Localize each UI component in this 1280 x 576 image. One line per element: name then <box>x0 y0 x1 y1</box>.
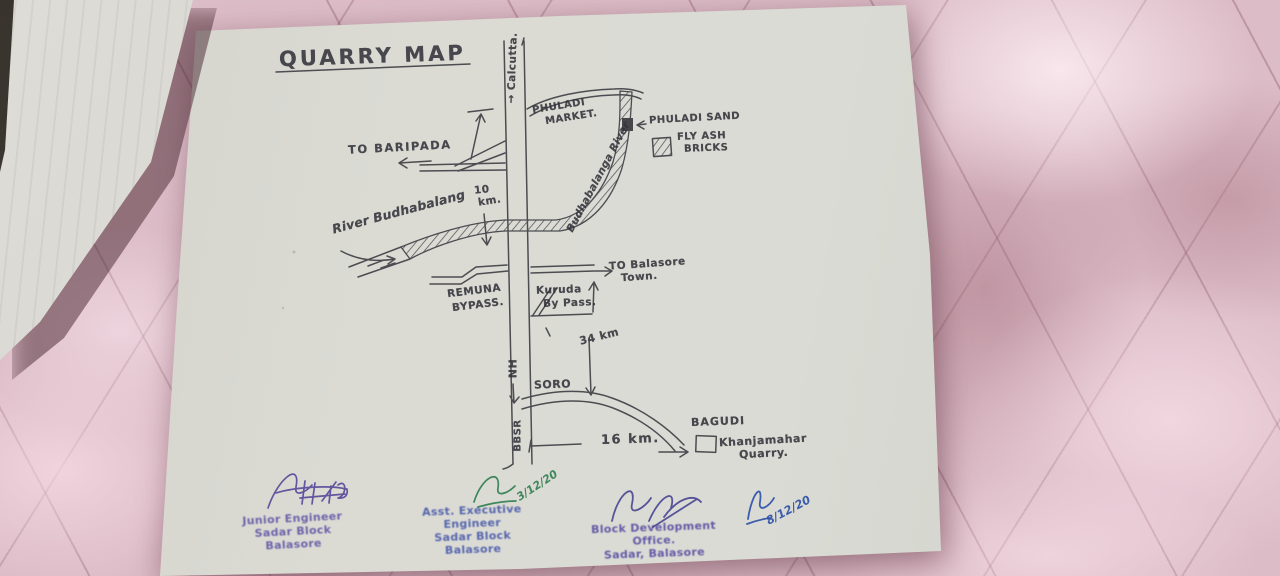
bbsr-label: BBSR <box>513 414 524 458</box>
nh-label: NH <box>507 349 520 389</box>
to-balasore-label-2: Town. <box>621 270 658 285</box>
quarry-label-2: Quarry. <box>739 446 789 462</box>
photo-of-quarry-map: QUARRY MAP → Calcutta. PHULADI MARKET. P… <box>0 0 1280 576</box>
legend-fly-ash-label-1: FLY ASH <box>677 130 727 143</box>
legend-fly-ash-label-2: BRICKS <box>684 142 729 155</box>
stamp-asst-executive-engineer: Asst. Executive Engineer Sadar Block Bal… <box>399 502 546 559</box>
stamp-junior-engineer: Junior Engineer Sadar Block Balasore <box>236 510 350 555</box>
bagudi-label: BAGUDI <box>691 414 746 429</box>
stamp-block-development-office: Block Development Office. Sadar, Balasor… <box>577 519 730 563</box>
soro-label: SORO <box>534 377 572 391</box>
kuruda-bypass-label-1: Kuruda <box>536 283 582 297</box>
kuruda-bypass-label-2: By Pass. <box>543 296 597 310</box>
sixteen-km-label: 16 km. <box>601 431 660 448</box>
